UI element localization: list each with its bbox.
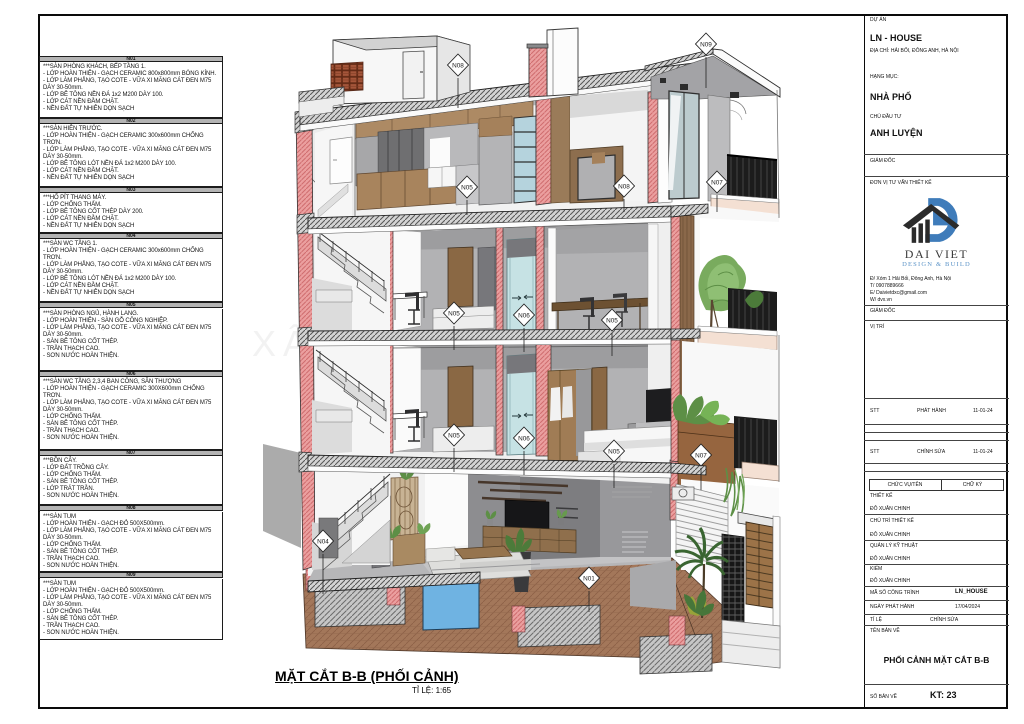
svg-text:N05: N05 [448,433,460,440]
svg-text:N06: N06 [518,313,530,320]
svg-text:N01: N01 [583,576,595,583]
svg-text:N05: N05 [608,449,620,456]
svg-text:N06: N06 [518,436,530,443]
svg-text:N08: N08 [618,184,630,191]
svg-text:N05: N05 [606,318,618,325]
svg-text:N05: N05 [461,185,473,192]
svg-text:N09: N09 [700,42,712,49]
svg-text:N07: N07 [711,180,723,187]
svg-text:N05: N05 [448,311,460,318]
svg-text:N07: N07 [695,453,707,460]
svg-text:N08: N08 [452,63,464,70]
svg-text:N04: N04 [317,539,329,546]
